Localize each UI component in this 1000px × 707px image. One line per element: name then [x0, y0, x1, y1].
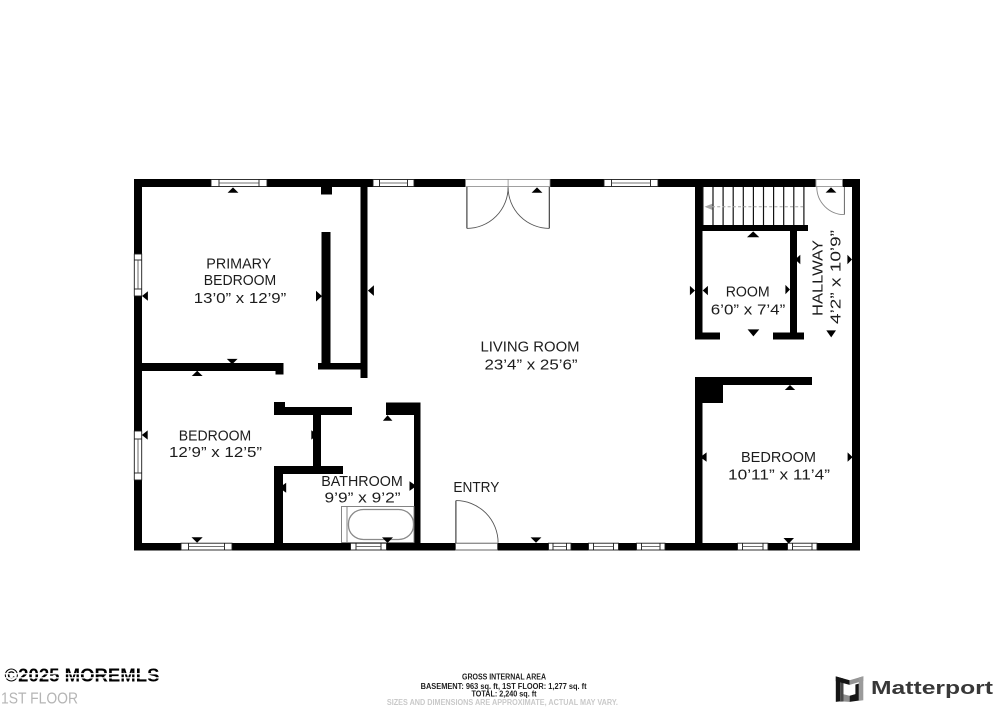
svg-text:BEDROOM: BEDROOM	[204, 272, 277, 289]
svg-text:ROOM: ROOM	[726, 284, 770, 301]
svg-text:1ST FLOOR: 1ST FLOOR	[1, 691, 78, 707]
svg-text:Matterport: Matterport	[871, 677, 993, 698]
svg-text:BEDROOM: BEDROOM	[179, 427, 252, 444]
svg-text:BEDROOM: BEDROOM	[741, 449, 816, 466]
svg-text:9’9” x 9’2”: 9’9” x 9’2”	[325, 489, 401, 506]
svg-text:ENTRY: ENTRY	[453, 479, 499, 496]
svg-text:LIVING ROOM: LIVING ROOM	[481, 338, 580, 355]
svg-text:PRIMARY: PRIMARY	[206, 256, 271, 273]
svg-text:6’0” x 7’4”: 6’0” x 7’4”	[711, 301, 786, 318]
svg-text:10’11” x 11’4”: 10’11” x 11’4”	[728, 467, 830, 484]
svg-text:12’9” x 12’5”: 12’9” x 12’5”	[169, 444, 262, 461]
svg-text:13’0” x 12’9”: 13’0” x 12’9”	[194, 290, 287, 307]
svg-text:23’4” x 25’6”: 23’4” x 25’6”	[485, 356, 578, 373]
svg-text:4’2” x 10’9”: 4’2” x 10’9”	[828, 230, 845, 324]
svg-text:HALLWAY: HALLWAY	[810, 240, 827, 316]
svg-text:BATHROOM: BATHROOM	[321, 473, 403, 490]
svg-text:©2025 MOREMLS: ©2025 MOREMLS	[5, 666, 160, 686]
svg-text:SIZES AND DIMENSIONS ARE APPRO: SIZES AND DIMENSIONS ARE APPROXIMATE, AC…	[387, 697, 618, 707]
